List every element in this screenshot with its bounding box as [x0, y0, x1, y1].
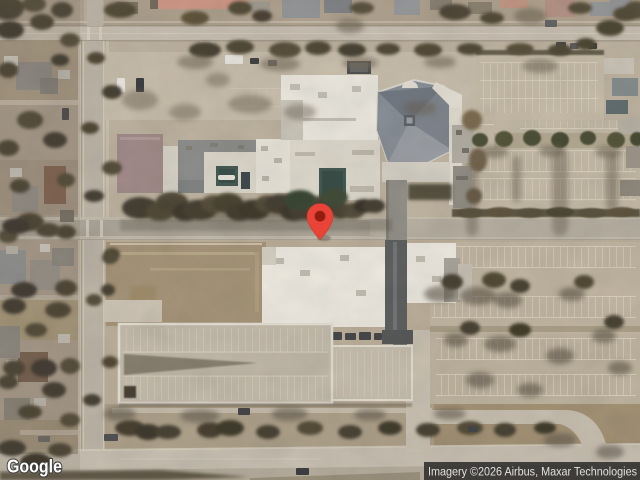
svg-text:Google: Google — [7, 457, 62, 477]
svg-text:Imagery ©2026 Airbus, Maxar Te: Imagery ©2026 Airbus, Maxar Technologies — [428, 465, 637, 479]
